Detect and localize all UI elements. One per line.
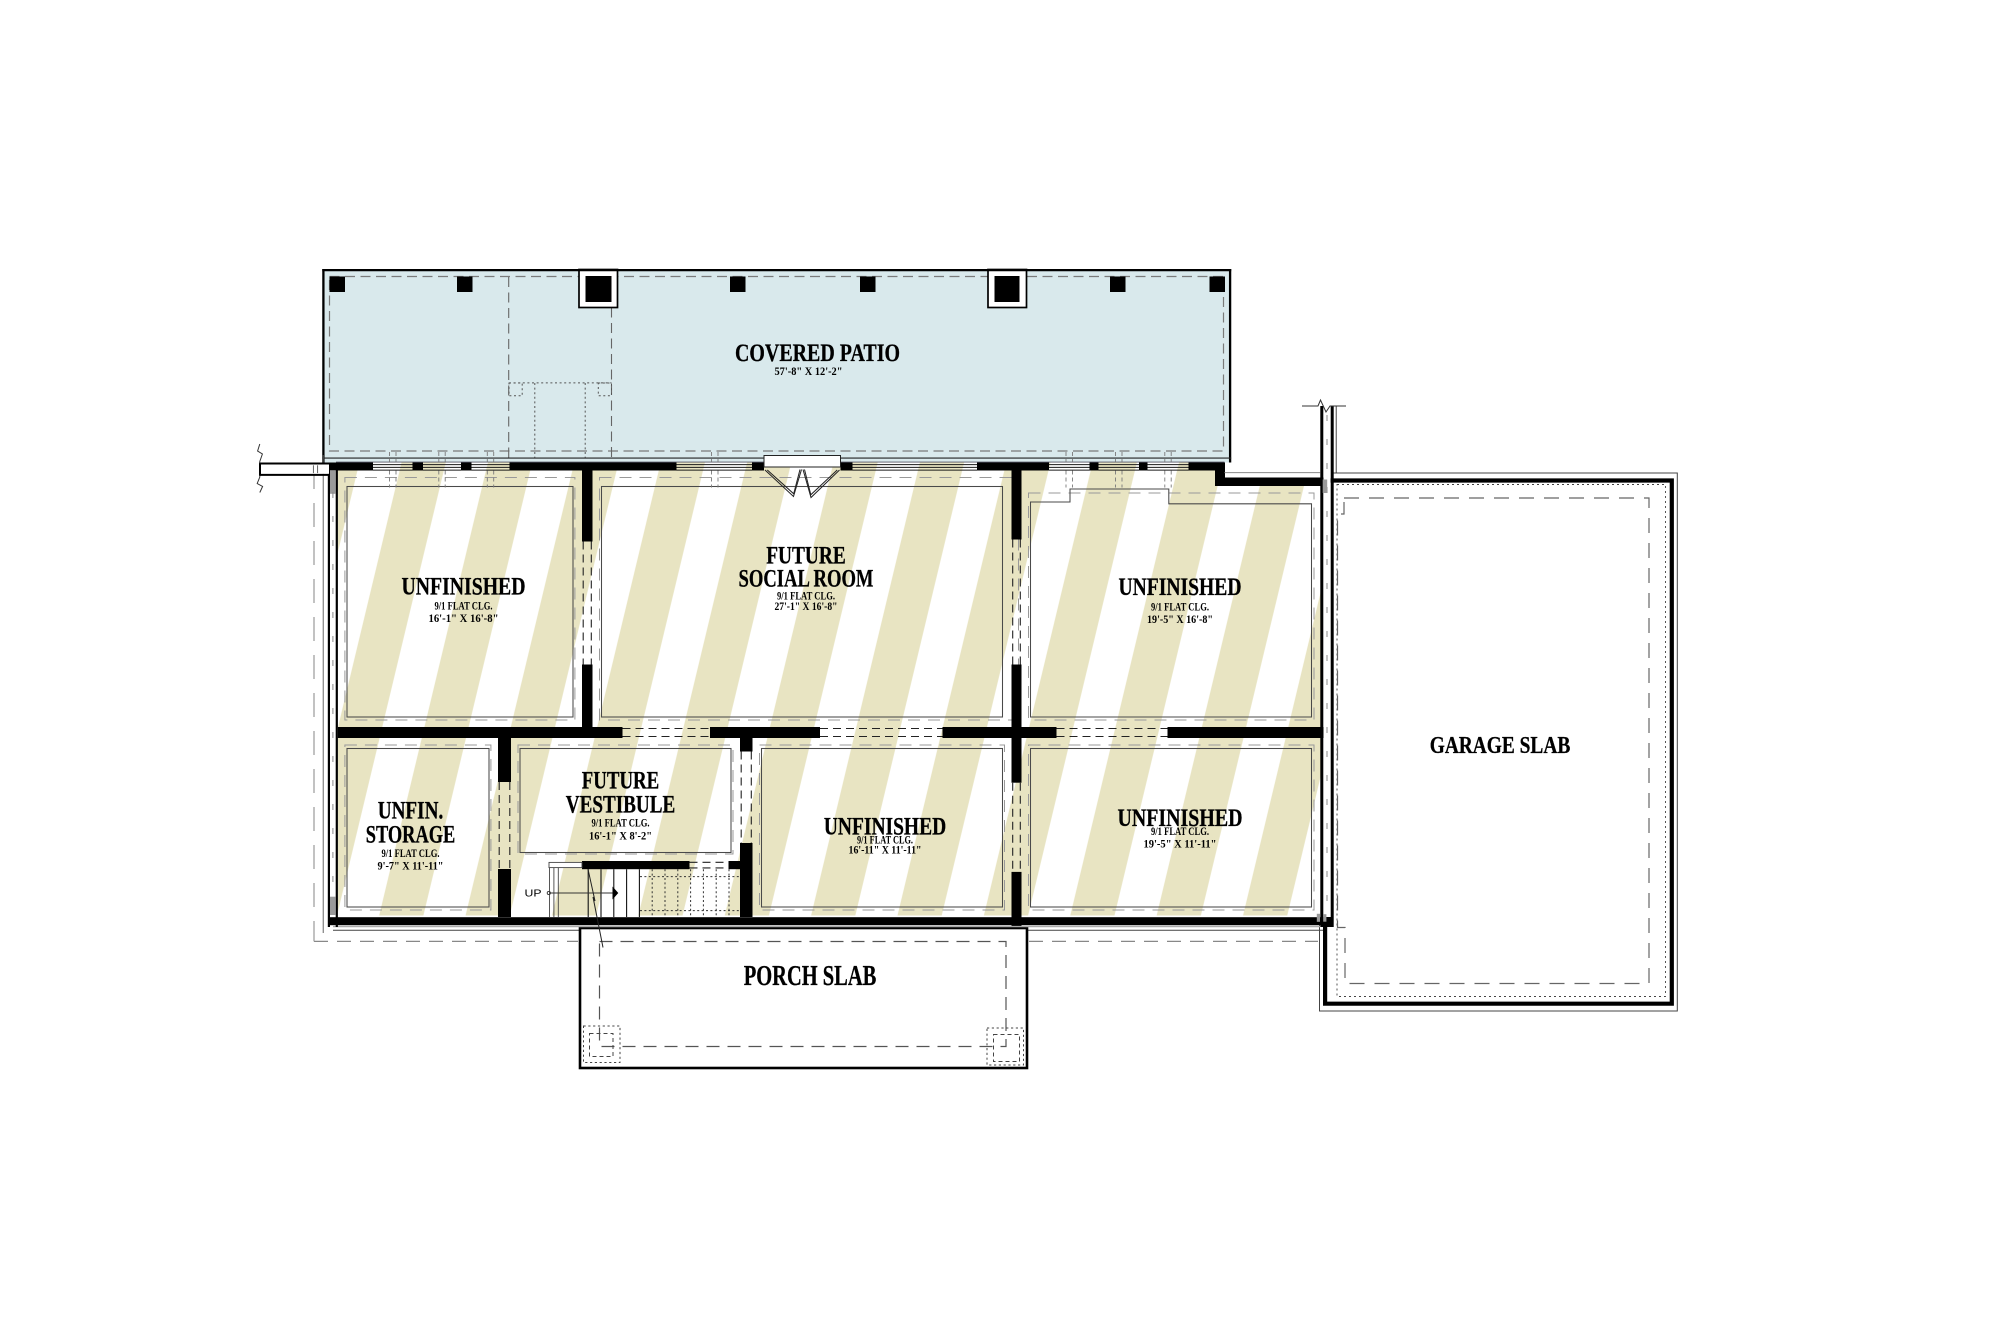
svg-text:PORCH SLAB: PORCH SLAB (744, 961, 877, 992)
svg-text:57'-8" X 12'-2": 57'-8" X 12'-2" (775, 364, 843, 378)
svg-text:19'-5" X 11'-11": 19'-5" X 11'-11" (1144, 837, 1217, 851)
svg-text:16'-1" X 8'-2": 16'-1" X 8'-2" (589, 829, 652, 843)
svg-text:FUTURE: FUTURE (582, 768, 660, 795)
svg-text:UNFINISHED: UNFINISHED (402, 574, 526, 601)
svg-text:16'-11" X 11'-11": 16'-11" X 11'-11" (849, 843, 922, 857)
svg-text:16'-1" X 16'-8": 16'-1" X 16'-8" (429, 611, 499, 625)
svg-text:COVERED PATIO: COVERED PATIO (735, 338, 900, 367)
svg-text:UNFIN.: UNFIN. (378, 798, 444, 825)
svg-text:GARAGE SLAB: GARAGE SLAB (1430, 733, 1571, 759)
svg-text:19'-5" X 16'-8": 19'-5" X 16'-8" (1147, 612, 1213, 626)
svg-text:STORAGE: STORAGE (366, 822, 456, 849)
svg-text:9/1 FLAT CLG.: 9/1 FLAT CLG. (592, 816, 650, 830)
svg-text:9'-7" X 11'-11": 9'-7" X 11'-11" (378, 859, 444, 873)
svg-text:VESTIBULE: VESTIBULE (566, 792, 676, 819)
svg-text:27'-1" X 16'-8": 27'-1" X 16'-8" (775, 599, 838, 613)
svg-text:UNFINISHED: UNFINISHED (1119, 574, 1242, 601)
svg-text:UP: UP (525, 888, 542, 900)
